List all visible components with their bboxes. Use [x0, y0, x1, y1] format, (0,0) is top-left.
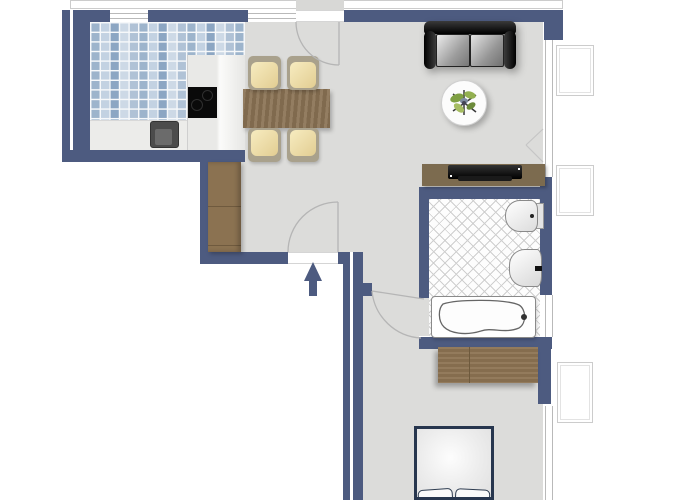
sofa-cushion: [470, 34, 504, 67]
entrance-opening: [288, 252, 338, 264]
sofa-back: [424, 21, 516, 34]
sill-inner-line: [559, 168, 591, 213]
wall-right-bed: [538, 349, 551, 404]
chair-seat: [290, 62, 316, 88]
sofa-armrest-right: [504, 31, 516, 69]
toilet: [505, 200, 544, 232]
entry-landing-top: [296, 0, 344, 10]
tv: [448, 165, 522, 179]
tv-led: [518, 168, 520, 170]
bed-pillow: [455, 488, 491, 500]
toilet-button: [530, 214, 534, 218]
bedroom-east-window: [543, 406, 556, 500]
floor-plan: [0, 0, 700, 500]
tv-led: [450, 175, 452, 177]
wall-corridor-outer: [343, 252, 350, 500]
wall-left-outer: [62, 10, 70, 157]
sofa-armrest-left: [424, 31, 436, 69]
north-window-beside-door: [248, 10, 296, 22]
sill-inner-line: [559, 48, 591, 93]
exterior-sill-right-1: [556, 45, 594, 96]
chair-seat: [290, 130, 316, 156]
kitchen-sink: [150, 121, 179, 148]
wall-corner-topright: [544, 10, 563, 40]
living-east-window: [543, 40, 556, 177]
dining-chair-1: [248, 56, 281, 90]
round-side-table: [441, 80, 487, 126]
bathroom-door-opening: [419, 298, 429, 336]
burner-ring: [191, 99, 203, 111]
wall-bath-north: [419, 187, 548, 199]
sink-basin: [155, 129, 172, 145]
tv-base: [458, 176, 512, 181]
wall-left-inner: [73, 10, 90, 157]
burner-ring: [202, 90, 213, 101]
exterior-sill-right-2: [556, 165, 594, 216]
wall-south: [200, 252, 288, 264]
hallway-floor: [363, 252, 419, 352]
hall-wardrobe: [208, 162, 241, 252]
wall-corridor-inner: [353, 252, 363, 500]
wall-top-b: [148, 10, 248, 22]
washbasin: [509, 249, 542, 287]
bedroom-wardrobe: [438, 347, 538, 383]
wall-bath-west: [419, 187, 429, 298]
sill-inner-line: [560, 365, 590, 420]
sofa: [424, 21, 516, 69]
exterior-sill-right-3: [557, 362, 593, 423]
entrance-arrow: [304, 262, 322, 296]
kitchen-north-window: [110, 10, 148, 22]
bathtub-east-window: [543, 295, 556, 337]
cooktop: [188, 87, 217, 118]
chair-seat: [251, 62, 278, 88]
dining-chair-2: [287, 56, 319, 90]
chair-seat: [251, 130, 278, 156]
bed-pillow: [417, 488, 453, 500]
dining-chair-3: [248, 128, 281, 162]
double-bed: [414, 426, 494, 500]
wall-kitchen-south: [62, 150, 245, 162]
bathtub: [431, 296, 536, 338]
sofa-cushion: [436, 34, 470, 67]
dining-table: [243, 89, 330, 128]
top-door-opening: [296, 10, 344, 22]
dining-chair-4: [287, 128, 319, 162]
basin-faucet: [535, 266, 542, 271]
